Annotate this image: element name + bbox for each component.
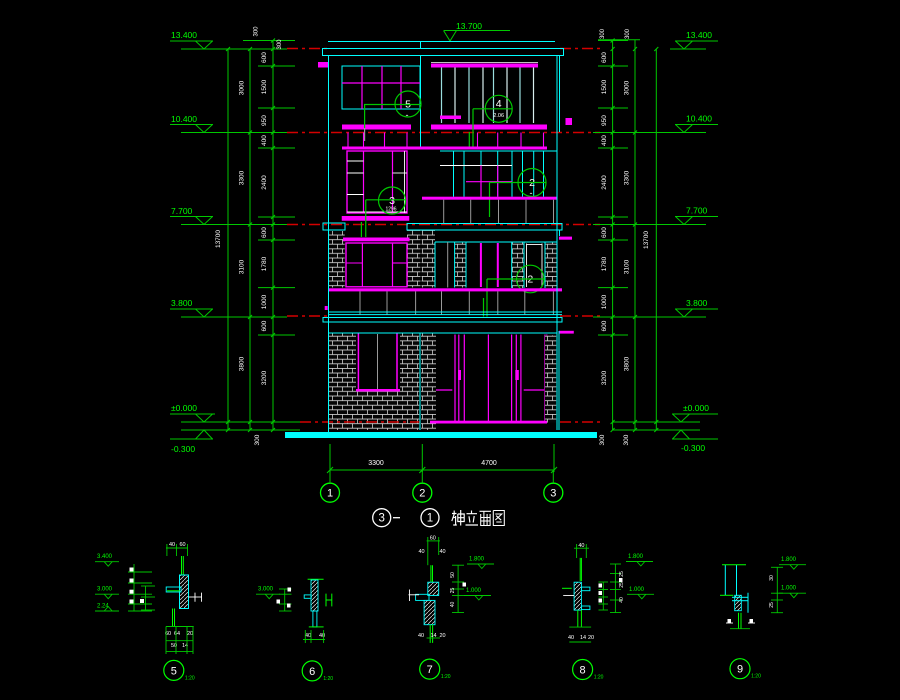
svg-text:300: 300 bbox=[277, 39, 283, 50]
svg-text:3: 3 bbox=[378, 513, 384, 525]
svg-text:20: 20 bbox=[439, 633, 445, 639]
svg-text:40: 40 bbox=[619, 597, 625, 603]
svg-text:13.400: 13.400 bbox=[686, 30, 712, 40]
svg-text:40: 40 bbox=[305, 633, 311, 639]
svg-text:3800: 3800 bbox=[239, 356, 246, 371]
svg-text:1.800: 1.800 bbox=[628, 554, 644, 560]
svg-text:64: 64 bbox=[174, 631, 180, 637]
svg-text:14: 14 bbox=[430, 633, 436, 639]
svg-text:7: 7 bbox=[427, 664, 433, 676]
svg-text:-0.300: -0.300 bbox=[681, 443, 705, 453]
svg-text:300: 300 bbox=[254, 26, 260, 37]
svg-text:950: 950 bbox=[601, 115, 608, 126]
svg-text:300: 300 bbox=[625, 28, 631, 39]
svg-text:400: 400 bbox=[261, 135, 268, 146]
svg-text:1.000: 1.000 bbox=[781, 586, 797, 592]
svg-text:3100: 3100 bbox=[624, 259, 631, 274]
svg-text:5: 5 bbox=[171, 665, 177, 677]
svg-text:3200: 3200 bbox=[601, 370, 608, 385]
svg-text:40: 40 bbox=[439, 549, 445, 555]
svg-text:10.400: 10.400 bbox=[686, 114, 712, 124]
svg-text:-0.300: -0.300 bbox=[171, 444, 195, 454]
svg-text:50: 50 bbox=[450, 572, 456, 578]
svg-text:13.700: 13.700 bbox=[456, 21, 482, 31]
svg-text:3300: 3300 bbox=[368, 460, 384, 467]
svg-text:3.800: 3.800 bbox=[686, 298, 708, 308]
svg-text:3300: 3300 bbox=[624, 170, 631, 185]
svg-text:3100: 3100 bbox=[239, 259, 246, 274]
svg-text:60: 60 bbox=[430, 536, 436, 542]
svg-text:3.800: 3.800 bbox=[171, 298, 193, 308]
svg-text:3: 3 bbox=[389, 195, 395, 207]
svg-text:950: 950 bbox=[261, 115, 268, 126]
svg-text:1.800: 1.800 bbox=[781, 557, 797, 563]
svg-text:25: 25 bbox=[619, 582, 625, 588]
svg-text:1:20: 1:20 bbox=[751, 674, 761, 680]
svg-text:8: 8 bbox=[580, 665, 586, 677]
svg-text:-: - bbox=[530, 188, 533, 198]
svg-text:1000: 1000 bbox=[261, 294, 268, 309]
svg-text:13.400: 13.400 bbox=[171, 30, 197, 40]
svg-text:6: 6 bbox=[309, 666, 315, 678]
svg-text:4700: 4700 bbox=[481, 460, 497, 467]
svg-text:600: 600 bbox=[261, 227, 268, 238]
svg-text:1296: 1296 bbox=[385, 207, 396, 213]
svg-text:1000: 1000 bbox=[601, 294, 608, 309]
svg-text:2.06: 2.06 bbox=[493, 113, 504, 119]
svg-text:600: 600 bbox=[601, 227, 608, 238]
svg-text:3200: 3200 bbox=[261, 370, 268, 385]
svg-text:1: 1 bbox=[327, 488, 333, 500]
svg-text:3: 3 bbox=[550, 488, 556, 500]
svg-text:1.000: 1.000 bbox=[466, 588, 482, 594]
svg-text:13700: 13700 bbox=[643, 231, 650, 249]
svg-text:40: 40 bbox=[418, 633, 424, 639]
svg-text:20: 20 bbox=[588, 635, 594, 641]
svg-text:10.400: 10.400 bbox=[171, 114, 197, 124]
svg-text:300: 300 bbox=[599, 434, 606, 445]
svg-text:3.000: 3.000 bbox=[258, 587, 274, 593]
svg-text:7.700: 7.700 bbox=[171, 206, 193, 216]
svg-text:30: 30 bbox=[769, 575, 775, 581]
svg-text:14: 14 bbox=[580, 635, 586, 641]
svg-text:40: 40 bbox=[169, 542, 175, 548]
svg-text:1:20: 1:20 bbox=[323, 676, 333, 682]
svg-text:4: 4 bbox=[496, 98, 502, 110]
svg-text:300: 300 bbox=[623, 434, 630, 445]
svg-text:600: 600 bbox=[601, 52, 608, 63]
svg-text:3000: 3000 bbox=[239, 80, 246, 95]
svg-text:3.400: 3.400 bbox=[97, 554, 113, 560]
svg-text:1500: 1500 bbox=[261, 79, 268, 94]
svg-text:2: 2 bbox=[419, 488, 425, 500]
svg-text:-: - bbox=[406, 110, 409, 120]
svg-text:20: 20 bbox=[187, 631, 193, 637]
svg-text:3300: 3300 bbox=[239, 170, 246, 185]
svg-text:600: 600 bbox=[261, 52, 268, 63]
svg-text:1.000: 1.000 bbox=[629, 587, 645, 593]
svg-text:300: 300 bbox=[254, 434, 261, 445]
svg-text:±0.000: ±0.000 bbox=[171, 403, 197, 413]
svg-text:3000: 3000 bbox=[624, 80, 631, 95]
svg-text:1780: 1780 bbox=[261, 256, 268, 271]
svg-text:1: 1 bbox=[427, 513, 433, 525]
svg-text:40: 40 bbox=[568, 635, 574, 641]
svg-text:2400: 2400 bbox=[261, 175, 268, 190]
svg-text:25: 25 bbox=[769, 602, 775, 608]
svg-text:1780: 1780 bbox=[601, 256, 608, 271]
svg-text:25: 25 bbox=[619, 571, 625, 577]
svg-text:300: 300 bbox=[600, 28, 606, 39]
svg-text:2.24: 2.24 bbox=[97, 604, 109, 610]
svg-text:400: 400 bbox=[601, 135, 608, 146]
svg-text:40: 40 bbox=[418, 549, 424, 555]
svg-text:40: 40 bbox=[450, 602, 456, 608]
svg-text:60: 60 bbox=[179, 542, 185, 548]
svg-text:1:20: 1:20 bbox=[594, 675, 604, 681]
svg-text:±0.000: ±0.000 bbox=[683, 403, 709, 413]
svg-text:9: 9 bbox=[737, 664, 743, 676]
svg-text:600: 600 bbox=[261, 320, 268, 331]
svg-text:1:20: 1:20 bbox=[185, 675, 195, 681]
svg-text:1:20: 1:20 bbox=[441, 674, 451, 680]
svg-text:25: 25 bbox=[450, 588, 456, 594]
svg-text:2400: 2400 bbox=[601, 175, 608, 190]
svg-text:7.700: 7.700 bbox=[686, 206, 708, 216]
svg-text:13700: 13700 bbox=[215, 230, 222, 248]
svg-text:3800: 3800 bbox=[624, 356, 631, 371]
svg-text:1500: 1500 bbox=[601, 79, 608, 94]
svg-text:600: 600 bbox=[601, 320, 608, 331]
svg-text:1.800: 1.800 bbox=[469, 557, 485, 563]
svg-text:3.000: 3.000 bbox=[97, 587, 113, 593]
svg-text:40: 40 bbox=[319, 633, 325, 639]
